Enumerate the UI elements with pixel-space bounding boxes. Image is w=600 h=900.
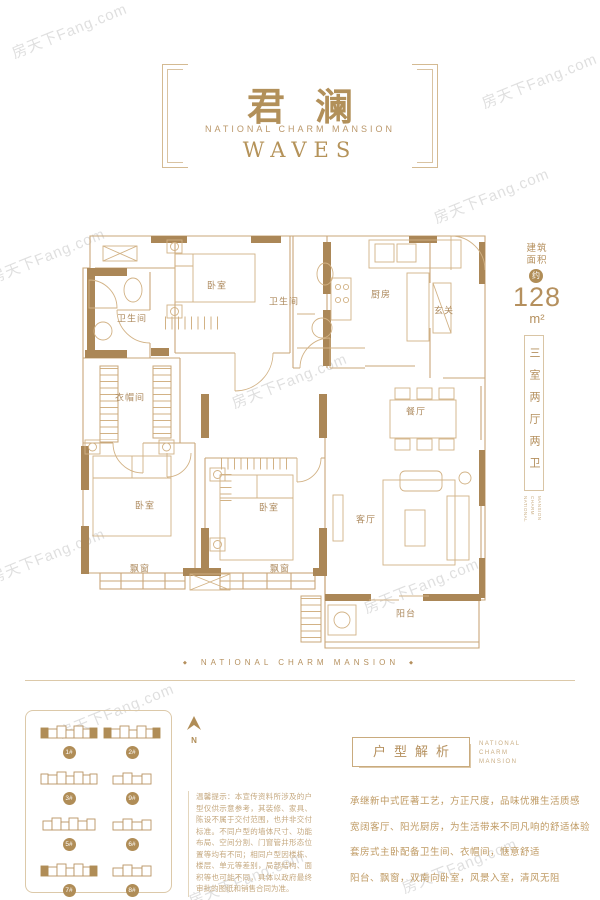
- divider-line: [25, 680, 575, 681]
- area-label-line2: 面积: [518, 255, 556, 267]
- building-icon: [103, 863, 161, 879]
- building-2: 2#: [103, 725, 161, 759]
- analysis-brand-word: MANSION: [479, 758, 521, 767]
- building-badge: 6#: [126, 838, 139, 851]
- watermark: 房天下Fang.com: [431, 163, 553, 228]
- room-label-dining: 餐厅: [406, 405, 426, 418]
- room-label-entry: 玄关: [434, 304, 454, 317]
- area-label: 建筑 面积: [518, 243, 556, 267]
- area-label-line1: 建筑: [518, 243, 556, 255]
- room-label-bath-1: 卫生间: [117, 312, 147, 325]
- building-1: 1#: [40, 725, 98, 759]
- layout-type-text: 三室两厅两卫: [526, 347, 542, 479]
- north-arrow-icon: [186, 716, 202, 731]
- analysis-line: 宽阔客厅、阳光厨房，为生活带来不同凡响的舒适体验: [350, 815, 592, 841]
- building-badge: 8#: [126, 884, 139, 897]
- building-8: 8#: [103, 863, 161, 897]
- area-unit: m²: [508, 311, 566, 326]
- building-badge: 1#: [63, 746, 76, 759]
- building-7: 7#: [40, 863, 98, 897]
- building-3: 3#: [40, 771, 98, 805]
- building-icon: [40, 725, 98, 741]
- divider-text: NATIONAL CHARM MANSION: [201, 658, 399, 667]
- building-icon: [40, 863, 98, 879]
- building-icon: [103, 725, 161, 741]
- analysis-brand: NATIONAL CHARM MANSION: [479, 740, 521, 767]
- page-title: 君澜: [0, 76, 600, 131]
- room-label-balcony: 阳台: [396, 607, 416, 620]
- building-badge: 9#: [126, 792, 139, 805]
- north-arrow: N: [185, 716, 203, 745]
- building-badge: 2#: [126, 746, 139, 759]
- building-badge: 3#: [63, 792, 76, 805]
- layout-type-box: 三室两厅两卫: [524, 335, 544, 491]
- analysis-line: 阳台、飘窗，双南向卧室，风景入室，清风无阻: [350, 866, 592, 892]
- room-label-closet: 衣帽间: [115, 391, 145, 404]
- building-icon: [40, 771, 98, 787]
- analysis-text: 承继新中式匠著工艺，方正尺度，品味优雅生活质感 宽阔客厅、阳光厨房，为生活带来不…: [350, 789, 592, 891]
- analysis-brand-word: CHARM: [479, 749, 521, 758]
- room-label-bath-2: 卫生间: [269, 295, 299, 308]
- room-label-baywindow-1: 飘窗: [130, 562, 150, 575]
- building-5: 5#: [40, 817, 98, 851]
- analysis-line: 套房式主卧配备卫生间、衣帽间，惬意舒适: [350, 840, 592, 866]
- diamond-icon: ◆: [173, 660, 201, 666]
- north-label: N: [185, 736, 203, 745]
- analysis-line: 承继新中式匠著工艺，方正尺度，品味优雅生活质感: [350, 789, 592, 815]
- building-icon: [103, 817, 161, 833]
- floorplan-poster: 房天下Fang.com 房天下Fang.com 房天下Fang.com 房天下F…: [0, 0, 600, 900]
- building-icon: [40, 817, 98, 833]
- analysis-title-box: 户型解析: [352, 737, 470, 767]
- vertical-brand-word: MANSION: [537, 496, 542, 530]
- area-value: 128: [508, 282, 566, 313]
- floorplan-drawing: [75, 228, 490, 653]
- room-label-bedroom-2: 卧室: [135, 499, 155, 512]
- watermark: 房天下Fang.com: [9, 0, 131, 63]
- room-label-baywindow-2: 飘窗: [270, 562, 290, 575]
- siteplan-box: 1# 2# 3# 9# 5# 6# 7# 8#: [25, 710, 172, 893]
- divider-title: ◆NATIONAL CHARM MANSION◆: [0, 658, 600, 667]
- vertical-brand-word: NATIONAL: [523, 496, 528, 530]
- brand-subtitle: NATIONAL CHARM MANSION: [0, 124, 600, 134]
- vertical-brand: NATIONAL CHARM MANSION: [523, 496, 542, 530]
- analysis-brand-word: NATIONAL: [479, 740, 521, 749]
- room-label-living: 客厅: [356, 513, 376, 526]
- disclaimer-text: 温馨提示：本宣传资料所涉及的户型仅供示意参考，其装修、家具、陈设不属于交付范围，…: [188, 791, 312, 897]
- diamond-icon: ◆: [399, 660, 427, 666]
- brand-tagline: WAVES: [0, 138, 600, 162]
- approx-badge: 约: [529, 269, 543, 283]
- room-label-bedroom-1: 卧室: [207, 279, 227, 292]
- vertical-brand-word: CHARM: [530, 496, 535, 530]
- room-label-bedroom-3: 卧室: [259, 501, 279, 514]
- building-9: 9#: [103, 771, 161, 805]
- building-badge: 5#: [63, 838, 76, 851]
- building-6: 6#: [103, 817, 161, 851]
- building-badge: 7#: [63, 884, 76, 897]
- building-icon: [103, 771, 161, 787]
- room-label-kitchen: 厨房: [371, 288, 391, 301]
